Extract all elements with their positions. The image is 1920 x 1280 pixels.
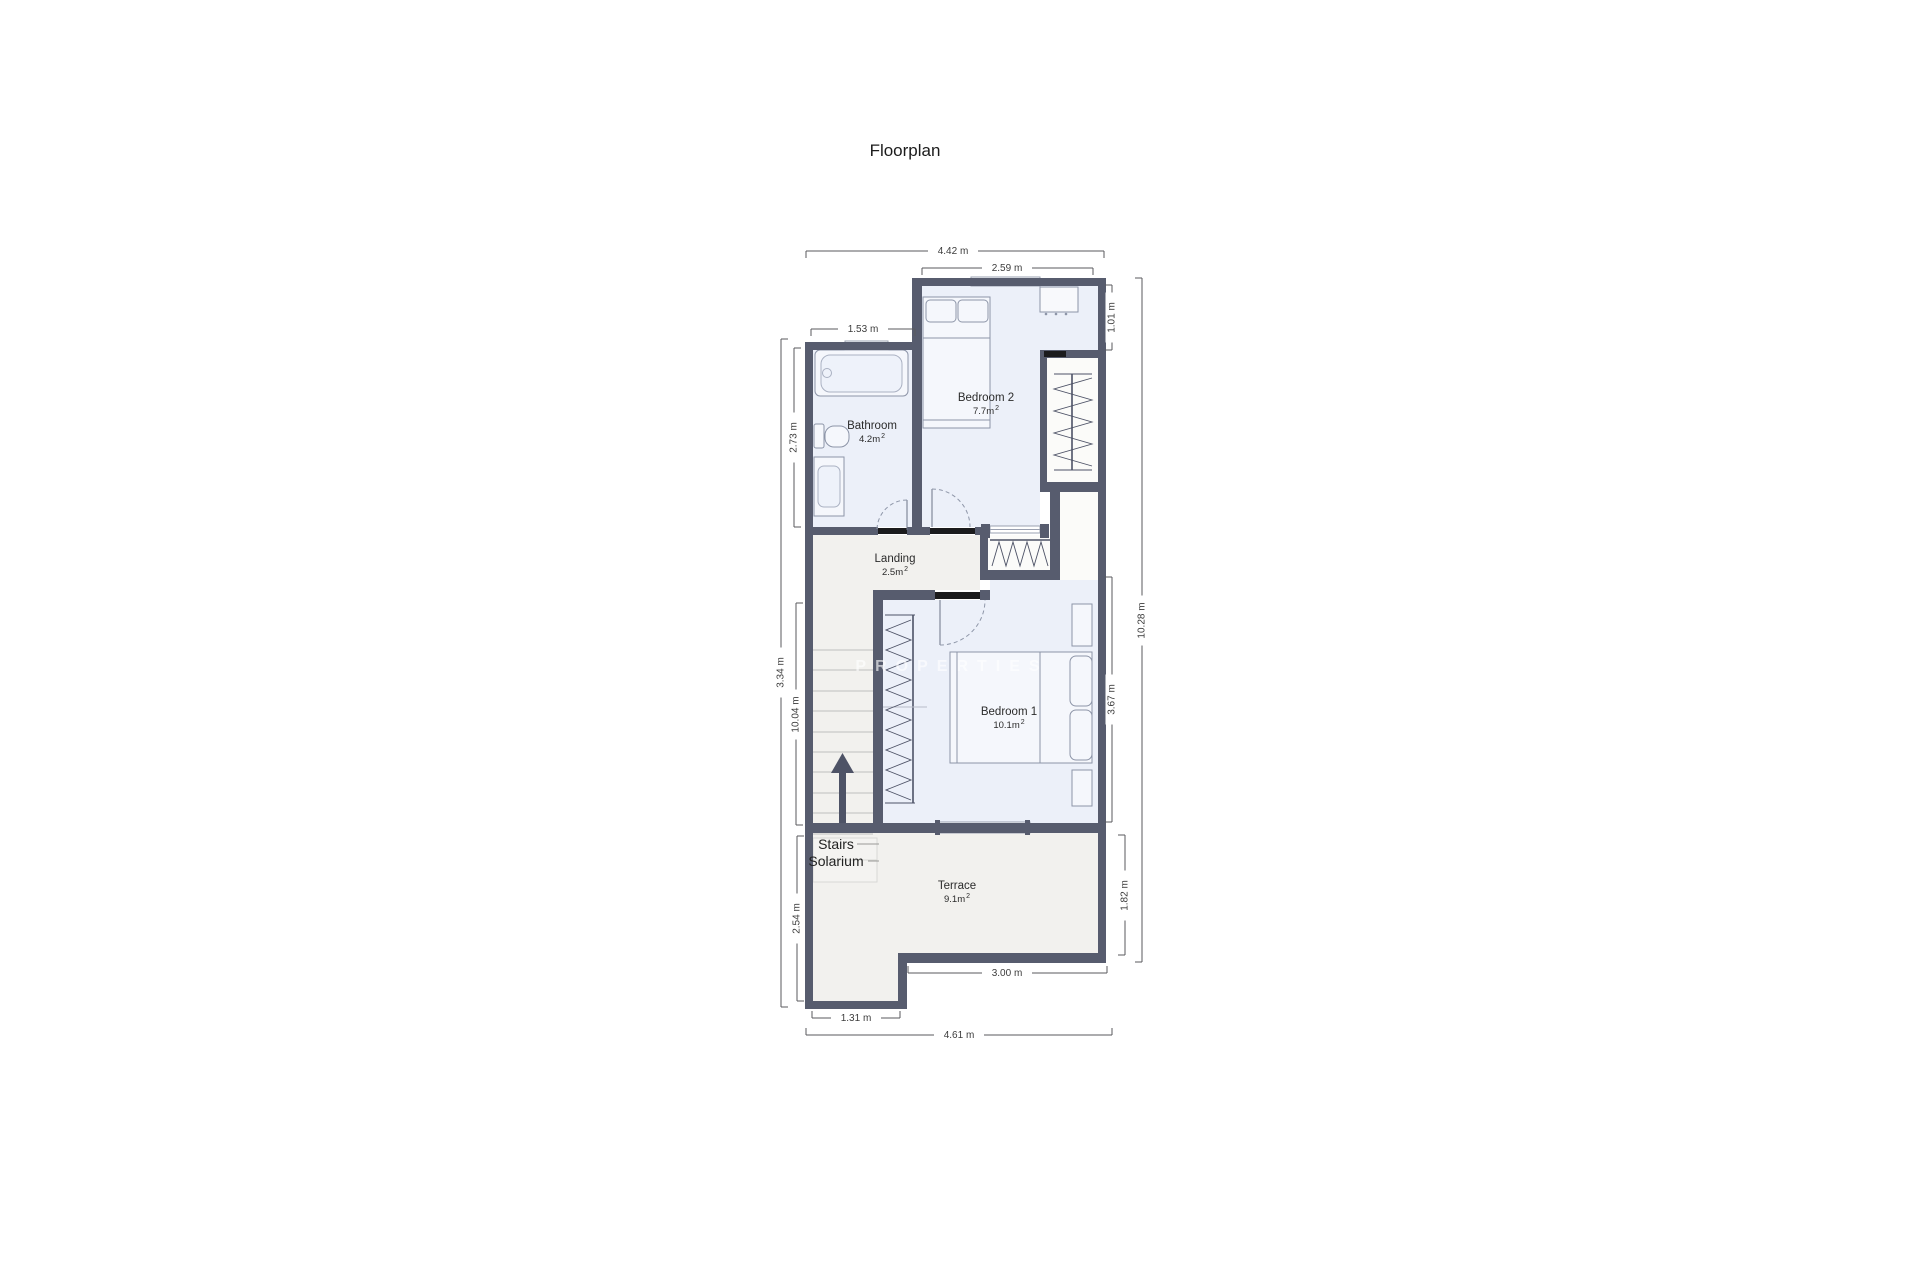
room-label-bedroom1: Bedroom 1 10.1m2: [949, 705, 1069, 732]
room-label-landing: Landing 2.5m2: [835, 552, 955, 579]
stairs-label-line2: Solarium: [776, 853, 896, 870]
floorplan-drawing: [0, 0, 1920, 1280]
nightstand-top: [1072, 604, 1092, 646]
wall: [805, 342, 915, 350]
wall: [980, 590, 990, 600]
wall: [805, 823, 1106, 833]
wall: [907, 527, 930, 535]
bed1-pillow-top: [1070, 656, 1092, 706]
nightstand-bottom: [1072, 770, 1092, 806]
wall: [980, 535, 988, 580]
stairs-label: Stairs Solarium: [776, 836, 896, 870]
wall: [915, 278, 1098, 286]
room-label-terrace: Terrace 9.1m2: [897, 879, 1017, 906]
bedroom1-floor-strip: [990, 580, 1098, 600]
wall: [1098, 278, 1106, 963]
wall: [898, 953, 907, 1009]
room-area: 2.5m2: [835, 566, 955, 579]
bedroom1-door-threshold: [935, 592, 980, 599]
room-name: Terrace: [897, 879, 1017, 893]
room-area: 10.1m2: [949, 719, 1069, 732]
dim-bathroom-width: 1.53 m: [838, 323, 888, 336]
wall: [805, 1001, 907, 1009]
bedroom2-door-threshold: [930, 528, 975, 534]
door-jamb: [1040, 524, 1049, 538]
wall: [912, 278, 922, 535]
dim-nook-height: 1.01 m: [1106, 293, 1119, 343]
dim-bedroom2-width: 2.59 m: [982, 262, 1032, 275]
dresser: [1040, 287, 1078, 312]
bed2-pillow-left: [926, 300, 956, 322]
watermark: PROPERTIES: [847, 658, 1057, 676]
wall: [980, 570, 1060, 580]
dim-bottom-total: 4.61 m: [934, 1029, 984, 1042]
dim-terrace-height: 1.82 m: [1119, 871, 1132, 921]
wall: [873, 600, 883, 833]
dim-wing-width: 1.31 m: [831, 1012, 881, 1025]
room-name: Bedroom 1: [949, 705, 1069, 719]
dim-bathroom-height: 2.73 m: [788, 413, 801, 463]
dim-terrace-bottom: 3.00 m: [982, 967, 1032, 980]
dressing-strip-floor: [1060, 492, 1098, 580]
dim-right-total-height: 10.28 m: [1136, 596, 1149, 646]
dim-bedroom1-height: 3.67 m: [1106, 675, 1119, 725]
stairs-label-line1: Stairs: [776, 836, 896, 853]
dim-left-outer-height: 3.34 m: [775, 648, 788, 698]
wall: [1050, 492, 1060, 580]
wall: [805, 527, 878, 535]
room-area: 9.1m2: [897, 893, 1017, 906]
room-area: 7.7m2: [926, 405, 1046, 418]
dim-top-total: 4.42 m: [928, 245, 978, 258]
closet-door-threshold: [1044, 351, 1066, 357]
wall: [1040, 482, 1106, 492]
room-label-bathroom: Bathroom 4.2m2: [812, 419, 932, 446]
dim-stairs-lower: 2.54 m: [791, 894, 804, 944]
bed2-pillow-right: [958, 300, 988, 322]
wall: [1040, 358, 1047, 482]
sink: [818, 466, 840, 507]
bed1-pillow-bottom: [1070, 710, 1092, 760]
bathroom-door-threshold: [878, 528, 907, 534]
bathtub-inner: [821, 355, 902, 392]
page-title: Floorplan: [805, 141, 1005, 161]
wall: [873, 590, 935, 600]
room-label-bedroom2: Bedroom 2 7.7m2: [926, 391, 1046, 418]
room-name: Bathroom: [812, 419, 932, 433]
room-name: Bedroom 2: [926, 391, 1046, 405]
floorplan-page: Floorplan PROPERTIES Bathroom 4.2m2 Bedr…: [0, 0, 1920, 1280]
room-area: 4.2m2: [812, 433, 932, 446]
wall: [898, 953, 1106, 963]
dim-left-inner-height: 10.04 m: [790, 690, 803, 740]
room-name: Landing: [835, 552, 955, 566]
